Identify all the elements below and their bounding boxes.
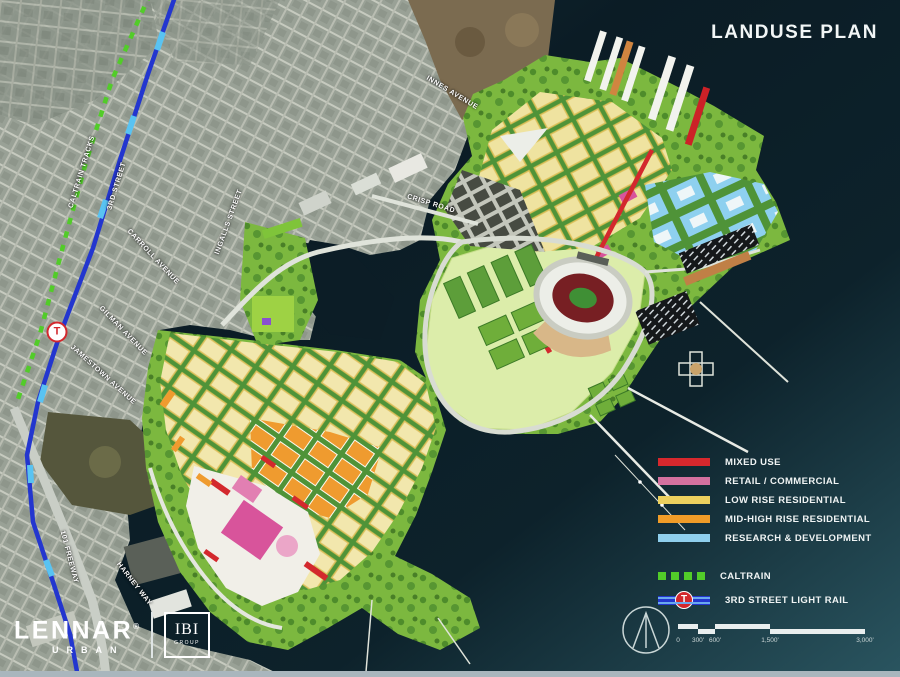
landuse-plan-map: LANDUSE PLAN CALTRAIN TRACKS 3RD STREET … (0, 0, 900, 677)
hill-patch (455, 27, 485, 57)
pier-marker (660, 503, 664, 507)
hill-patch (505, 13, 539, 47)
park-parcel (262, 318, 271, 325)
bottom-border-strip (0, 671, 900, 677)
pier-marker (638, 480, 642, 484)
hill-patch (89, 446, 121, 478)
park-development (252, 296, 294, 332)
map-canvas[interactable] (0, 0, 900, 677)
retail-plaza (276, 535, 298, 557)
